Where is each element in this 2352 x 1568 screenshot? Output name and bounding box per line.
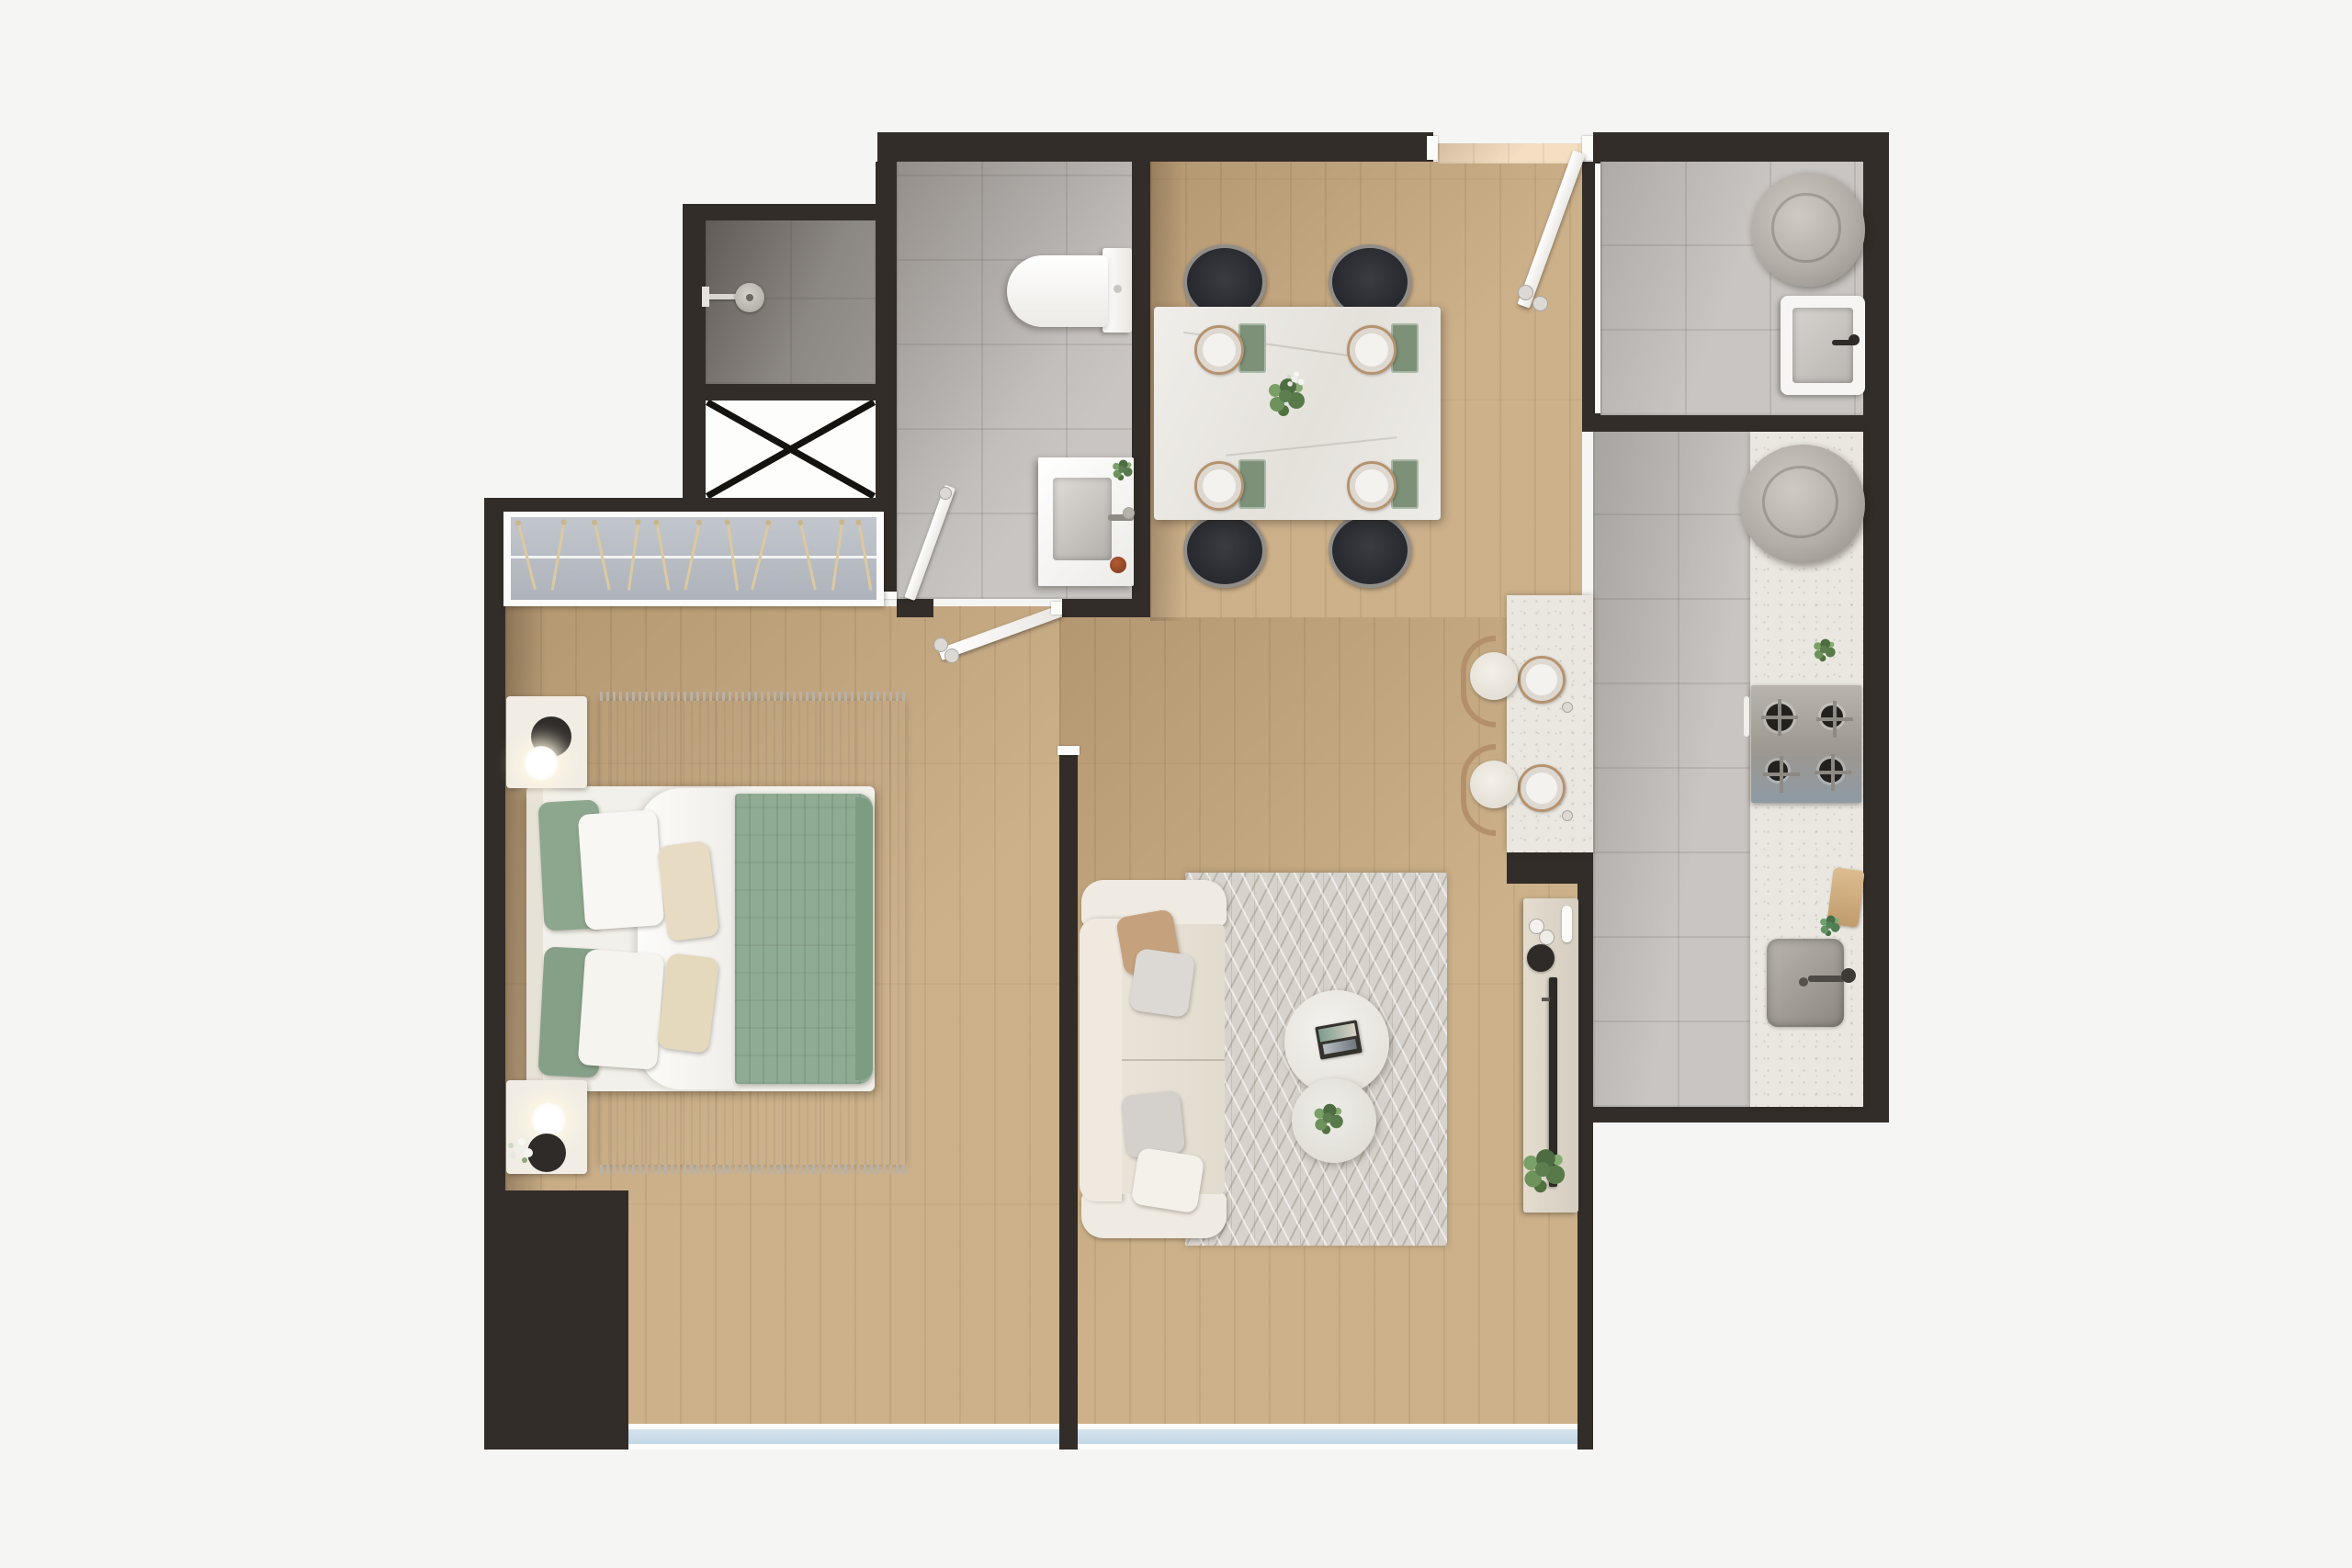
kitchen-counter-plant — [1820, 646, 1827, 653]
wall-living-east — [1577, 884, 1593, 1450]
sofa-backrest — [1080, 919, 1122, 1201]
gas-hob — [1751, 685, 1861, 803]
coffee-table-small — [1292, 1078, 1376, 1163]
stool-seat — [1470, 761, 1518, 808]
wall-utility-bottom — [1593, 415, 1863, 432]
dining-chair — [1183, 513, 1266, 588]
wall-bathroom-right — [1132, 162, 1150, 617]
wall-island-stub — [1507, 852, 1593, 884]
shower-door-knob — [939, 487, 952, 500]
dinner-plate — [1347, 461, 1396, 511]
wall-bedroom-top — [484, 498, 897, 512]
kitchen-faucet-icon — [1808, 976, 1845, 982]
bathroom-door-handle — [944, 649, 959, 663]
sideboard-plant — [1535, 1162, 1550, 1177]
wardrobe — [503, 512, 884, 606]
bedroom-window-glass — [628, 1429, 1059, 1444]
wall-mass-bottom-left — [484, 1190, 628, 1450]
utility-door-jamb — [1595, 164, 1600, 413]
wall-bedroom-left — [484, 512, 505, 1222]
tv-screen — [1549, 977, 1557, 1187]
bedroom-window-sill — [628, 1444, 1059, 1450]
quilt-green — [735, 794, 873, 1084]
vanity-faucet-handle — [1123, 507, 1135, 519]
bathroom-door-hinge-cap — [1051, 602, 1062, 615]
nightstand-tray — [527, 1134, 566, 1172]
shower-floor — [706, 220, 876, 384]
rug-fringe-bottom — [600, 1165, 905, 1174]
wall-shower-shaft-divider — [706, 384, 876, 400]
sofa-pillow-white — [1131, 1147, 1205, 1214]
wall-kitchen-bottom — [1582, 1107, 1889, 1122]
laundry-sink — [1781, 296, 1865, 395]
decor-candle — [1539, 930, 1555, 945]
dining-chair — [1329, 513, 1411, 588]
entry-threshold — [1438, 143, 1582, 164]
burner-icon — [1819, 759, 1843, 783]
washing-machine-drum — [1751, 173, 1865, 287]
wall-top-utility — [1593, 132, 1889, 162]
wall-shower-left — [683, 204, 706, 512]
burner-icon — [1768, 761, 1788, 781]
toilet-flush-button — [1114, 285, 1122, 293]
coffee-table-plant — [1322, 1112, 1332, 1122]
divider-wall-cap — [1057, 746, 1080, 755]
kitchen-cylindrical-appliance — [1740, 445, 1865, 564]
entry-door-handle — [1518, 285, 1533, 300]
sofa-seat-split — [1122, 1059, 1225, 1061]
quilt-fold — [855, 797, 873, 1080]
living-window-glass — [1078, 1429, 1582, 1444]
wall-right-outer — [1863, 132, 1889, 1122]
shaft-cross-icon — [706, 400, 876, 498]
bar-glass — [1562, 810, 1573, 821]
dining-centerpiece-plant — [1279, 389, 1292, 402]
kitchen-sink-drain — [1799, 977, 1808, 987]
hob-handle — [1744, 696, 1749, 737]
shower-arm-flange — [702, 287, 709, 307]
vanity-basin — [1053, 478, 1112, 560]
red-clay-bowl — [1110, 557, 1126, 573]
bar-plate — [1518, 764, 1566, 812]
dinner-plate — [1194, 325, 1244, 375]
stool-seat — [1470, 652, 1518, 700]
burner-icon — [1821, 705, 1843, 728]
burner-icon — [1766, 704, 1793, 731]
bar-glass — [1562, 702, 1573, 713]
kitchen-faucet-base — [1841, 968, 1856, 983]
floor-plan-canvas — [0, 0, 2352, 1568]
entry-jamb-left — [1427, 136, 1438, 160]
laundry-faucet-base — [1849, 334, 1860, 345]
dinner-plate — [1347, 325, 1396, 375]
decor-bowl — [1527, 944, 1555, 972]
sofa-pillow-gray — [1121, 1090, 1186, 1158]
ventilation-shaft-1 — [706, 400, 876, 498]
nightstand-flowers — [514, 1145, 524, 1154]
sofa — [1080, 880, 1228, 1240]
kitchen-greens — [1826, 921, 1833, 929]
tv-stand-foot — [1542, 998, 1550, 1001]
pillow-white — [578, 809, 665, 931]
bar-plate — [1518, 656, 1566, 704]
sofa-pillow-gray-light — [1129, 948, 1196, 1018]
laundry-sink-basin — [1792, 308, 1853, 383]
pillow-white — [578, 949, 665, 1070]
living-window-sill — [1078, 1444, 1582, 1450]
dinner-plate — [1194, 461, 1244, 511]
wardrobe-interior — [511, 517, 876, 600]
book-cover — [1323, 1039, 1357, 1055]
dining-centerpiece-flowers — [1292, 377, 1298, 383]
wall-bathroom-bottom-right — [1062, 599, 1150, 617]
table-lamp-on — [524, 746, 559, 781]
wall-top-bathroom-dining — [877, 132, 1433, 162]
decor-tray — [1562, 906, 1572, 942]
rug-fringe-top — [600, 692, 905, 701]
toilet-bowl — [1007, 255, 1108, 327]
marble-vein — [1226, 436, 1396, 457]
entry-door-handle — [1532, 296, 1548, 311]
wall-bathroom-bottom-left — [897, 599, 933, 617]
wall-divider-bedroom-living — [1059, 753, 1078, 1450]
kitchen-island — [1507, 595, 1593, 852]
double-bed — [526, 786, 875, 1091]
shower-head-center — [746, 294, 753, 301]
vanity-plant-sprig — [1118, 466, 1125, 473]
table-lamp-on — [531, 1102, 566, 1137]
wall-shower-top — [683, 204, 897, 220]
